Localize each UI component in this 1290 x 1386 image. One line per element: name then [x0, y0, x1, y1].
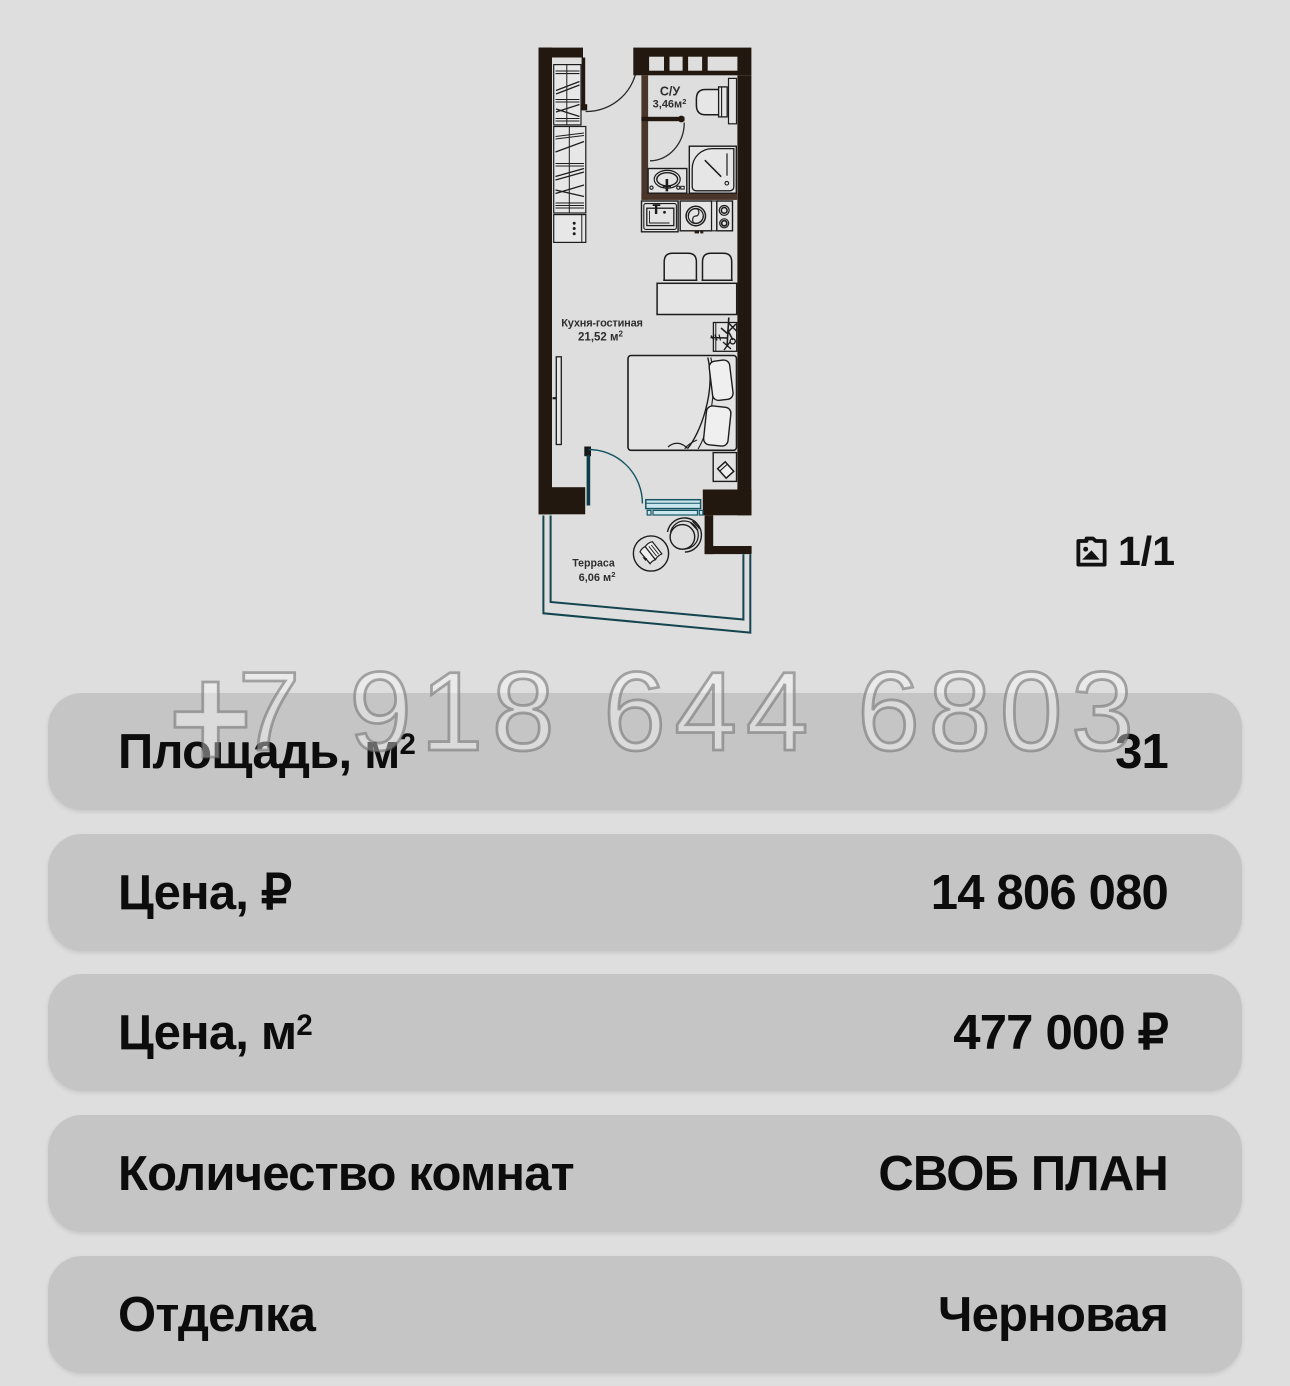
svg-text:3,46м2: 3,46м2 [653, 97, 687, 111]
svg-text:С/У: С/У [660, 85, 681, 99]
svg-text:Терраса: Терраса [572, 558, 615, 570]
svg-text:Кухня-гостиная: Кухня-гостиная [561, 318, 642, 330]
svg-text:6,06 м2: 6,06 м2 [579, 570, 616, 584]
svg-text:21,52 м2: 21,52 м2 [578, 330, 623, 344]
